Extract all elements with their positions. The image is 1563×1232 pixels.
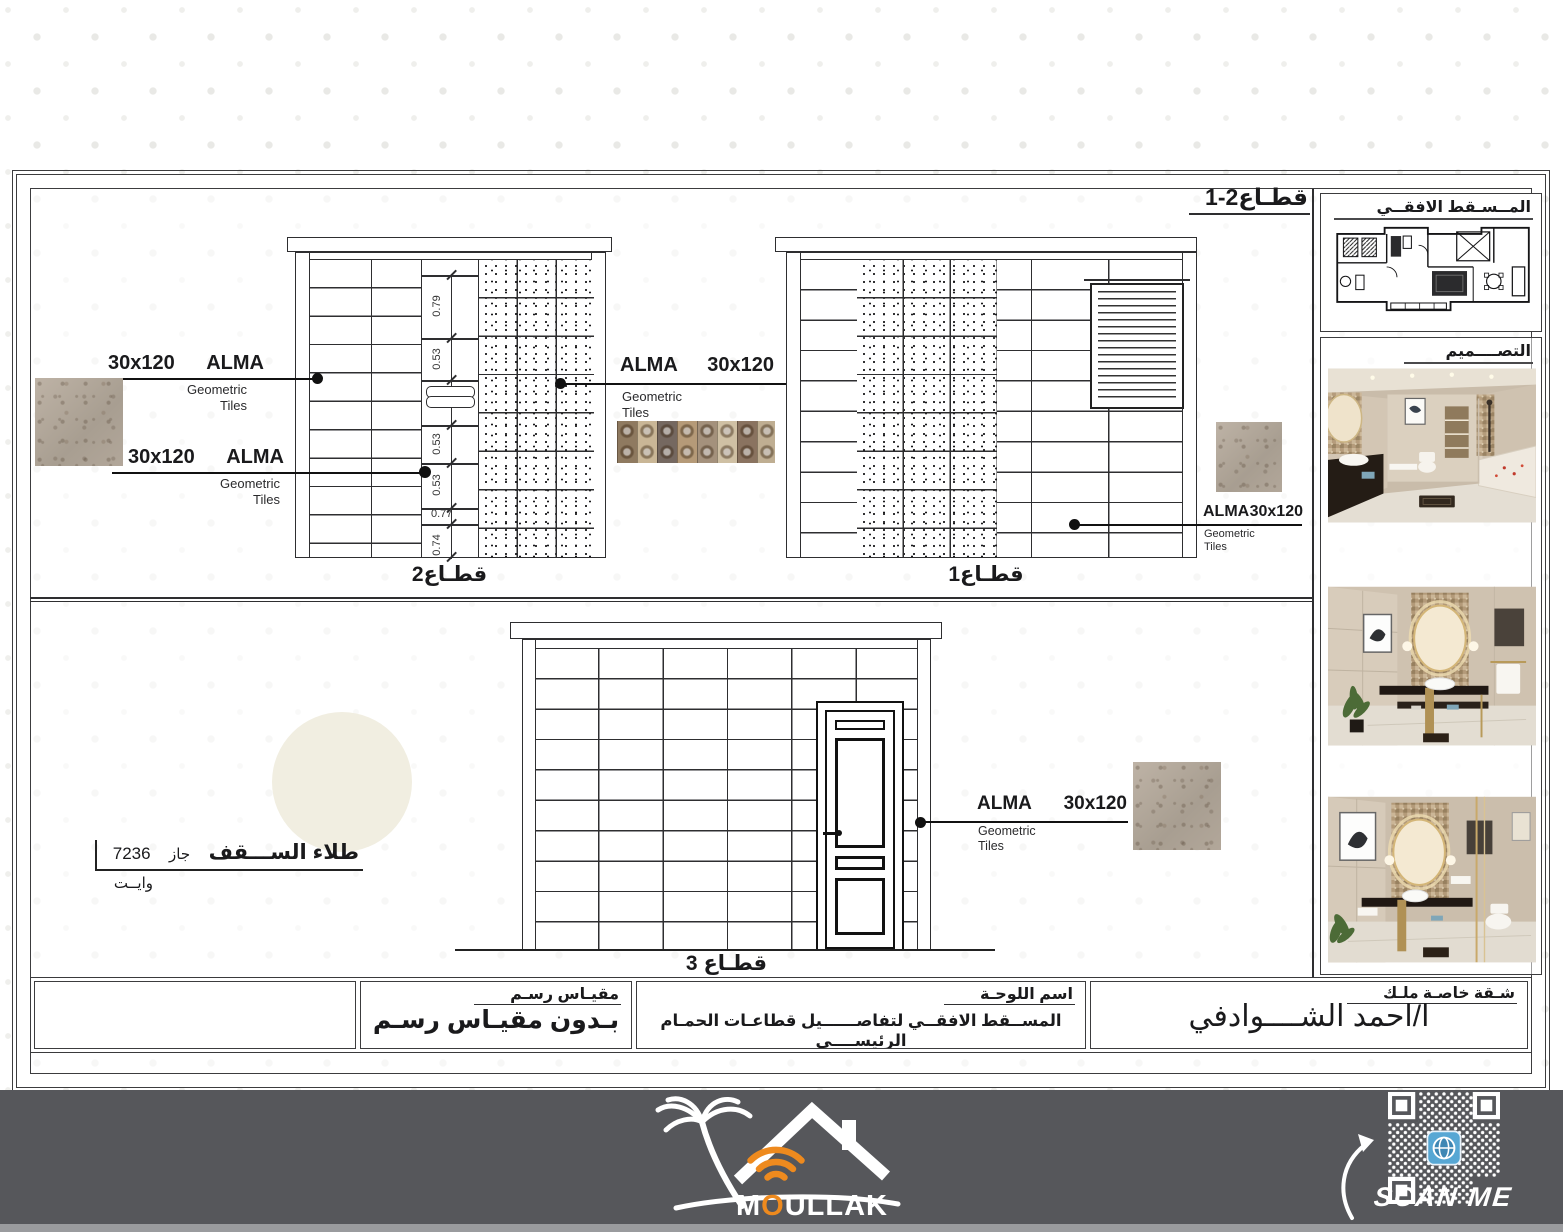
- door-handle: [823, 832, 837, 835]
- ceiling-note-word: جاز: [169, 846, 190, 863]
- design-render-3: [1328, 796, 1536, 963]
- scale-label: مقيـاس رسـم: [361, 982, 631, 1004]
- section-ref-text: قطـاع2-1: [1189, 184, 1310, 215]
- tile-sub-text: Tiles: [1204, 541, 1227, 553]
- scale-cell: مقيـاس رسـم بـدون مقيـاس رسـم: [360, 981, 632, 1049]
- tile-brand-text: ALMA: [226, 446, 284, 469]
- callout-dot: [312, 373, 323, 384]
- door-upper-panel: [835, 738, 885, 848]
- ceiling-note-code: 7236: [113, 844, 151, 863]
- tile-callout-bottom: ALMA 30x120: [977, 793, 1127, 815]
- callout-dot: [555, 378, 566, 389]
- tile-sub-text: Geometric: [622, 389, 682, 404]
- section1-label: قطـاع1: [775, 562, 1197, 587]
- globe-icon: [1427, 1131, 1460, 1164]
- section1-right-column: [1182, 253, 1196, 557]
- tile-sub-text: Tiles: [978, 839, 1004, 853]
- door-leaf: [825, 710, 895, 949]
- tile-sub-text: Geometric: [978, 824, 1036, 838]
- tile-size-text: 30x120: [707, 354, 774, 377]
- drawing-sheet: قطـاع2-1 0.79 0.53: [0, 0, 1563, 1232]
- sheet-name-label: اسم اللوحـة: [637, 982, 1085, 1004]
- tile-sub-text: Tiles: [622, 405, 649, 420]
- dim-value: 0.53: [424, 346, 450, 372]
- dim-value: 0.74: [424, 532, 450, 558]
- design-title: التصــــميم: [1321, 338, 1541, 361]
- section2-niche-column: 0.79 0.53 0.53 0.53 0.77 0.74: [421, 260, 479, 557]
- ceiling-note-line1: طلاء الســـقف جاز 7236: [95, 840, 363, 871]
- dim-value: 0.77: [431, 508, 452, 520]
- tile-joint-line: [371, 260, 372, 557]
- tile-callout-left-1: 30x120 ALMA: [108, 352, 264, 375]
- section-divider-line: [30, 597, 1312, 599]
- louver-window: [1090, 283, 1184, 409]
- tile-size-text: 30x120: [108, 352, 175, 375]
- sheet-name-value: المســقط الافقــي لتفاصــــــيل قطاعـات …: [637, 1011, 1085, 1049]
- decorative-circle: [272, 712, 412, 852]
- tile-swatch-image: [35, 378, 123, 466]
- tile-brand-text: ALMA: [1203, 503, 1249, 521]
- brand-letters-rest: ULLAK: [785, 1190, 888, 1222]
- section-divider-line-2: [30, 601, 1312, 602]
- chimney-icon: [842, 1120, 856, 1150]
- tile-size-text: 30x120: [128, 446, 195, 469]
- tile-sub-text: Geometric: [1204, 528, 1255, 540]
- dim-value: 0.53: [424, 431, 450, 457]
- scale-value: بـدون مقيـاس رسـم: [361, 1005, 631, 1035]
- tile-swatch-image: [1216, 422, 1282, 492]
- ceiling-note-title: طلاء الســـقف: [209, 841, 359, 864]
- brand-wordmark: MOULLAK: [736, 1190, 888, 1223]
- section2-elevation: 0.79 0.53 0.53 0.53 0.77 0.74: [295, 252, 606, 558]
- tile-brand-text: ALMA: [977, 793, 1032, 815]
- brand-letter-o: O: [761, 1190, 785, 1222]
- leader-line: [1077, 524, 1302, 526]
- door-lower-panel: [835, 878, 885, 935]
- design-render-2: [1328, 586, 1536, 746]
- leader-line: [123, 378, 315, 380]
- design-render-1: [1328, 368, 1536, 523]
- door-handle-knob: [836, 830, 842, 836]
- patchwork-tile-strip-image: [617, 421, 775, 463]
- section2-label: قطـاع2: [287, 562, 612, 587]
- section3-ceiling-band: [510, 622, 942, 639]
- louver-slats: [1098, 291, 1176, 401]
- tile-callout-right: ALMA 30x120: [1203, 503, 1303, 521]
- window-cap-line: [1084, 279, 1190, 281]
- door-top-rail: [835, 720, 885, 730]
- tile-callout-middle: ALMA 30x120: [620, 354, 774, 377]
- tile-sub-text: Tiles: [105, 398, 247, 413]
- section3-right-column: [917, 640, 930, 949]
- floor-plan-title: المــسـقط الافقــي: [1321, 194, 1541, 217]
- tile-sub-text: Tiles: [132, 492, 280, 507]
- owner-cell: شـقة خاصـة ملـك ا/احمد الشــــوادفي: [1090, 981, 1528, 1049]
- section-ref-label: قطـاع2-1: [1160, 184, 1310, 211]
- footer-band: MOULLAK: [0, 1090, 1563, 1232]
- title-block: مقيـاس رسـم بـدون مقيـاس رسـم اسم اللوحـ…: [30, 977, 1532, 1053]
- ceiling-note-line2: وايــت: [95, 871, 363, 892]
- leader-line: [920, 821, 1128, 823]
- section2-tile-rows: [309, 260, 421, 557]
- section1-elevation: [786, 252, 1197, 558]
- section1-ceiling-band: [775, 237, 1197, 252]
- callout-dot: [419, 466, 431, 478]
- towel-shelf-item: [426, 396, 475, 408]
- sidebar-divider-line: [1312, 189, 1314, 977]
- door: [816, 701, 904, 951]
- tile-size-text: 30x120: [1250, 503, 1303, 521]
- brand-letter-m: M: [736, 1190, 761, 1222]
- section3-elevation: [522, 639, 931, 950]
- moullak-logo: MOULLAK: [652, 1094, 918, 1228]
- door-mid-rail: [835, 856, 885, 870]
- section2-dotted-tiles: [479, 260, 594, 557]
- section3-label: قطـاع 3: [522, 951, 931, 976]
- section1-dotted-tiles: [857, 260, 997, 557]
- tile-brand-text: ALMA: [206, 352, 264, 375]
- ceiling-paint-note: طلاء الســـقف جاز 7236 وايــت: [95, 840, 363, 892]
- design-panel: التصــــميم: [1320, 337, 1542, 975]
- owner-value: ا/احمد الشــــوادفي: [1091, 999, 1527, 1034]
- tile-sub-text: Geometric: [105, 382, 247, 397]
- section1-left-column: [787, 253, 801, 557]
- title-block-empty-cell: [34, 981, 356, 1049]
- tile-brand-text: ALMA: [620, 354, 678, 377]
- tile-size-text: 30x120: [1064, 793, 1127, 815]
- dim-value: 0.79: [424, 293, 450, 319]
- section2-left-column: [296, 253, 310, 557]
- floor-plan-panel: المــسـقط الافقــي: [1320, 193, 1542, 332]
- leader-line: [112, 472, 427, 474]
- floor-plan-image: [1329, 221, 1535, 317]
- tile-callout-left-2: 30x120 ALMA: [128, 446, 284, 469]
- sheet-name-cell: اسم اللوحـة المســقط الافقــي لتفاصـــــ…: [636, 981, 1086, 1049]
- scan-me-label: SCAN ME: [1372, 1182, 1525, 1213]
- tile-sub-text: Geometric: [132, 476, 280, 491]
- tile-swatch-image: [1133, 762, 1221, 850]
- section2-ceiling-band: [287, 237, 612, 252]
